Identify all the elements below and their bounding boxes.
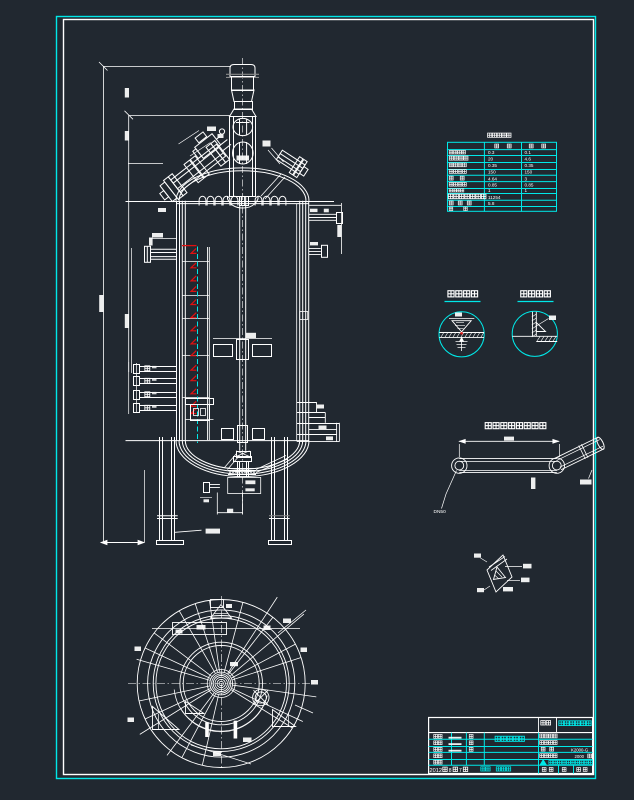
svg-text:8: 8 xyxy=(449,768,452,774)
svg-text:20: 20 xyxy=(488,156,494,161)
svg-text:150: 150 xyxy=(488,170,496,175)
svg-text:0.85: 0.85 xyxy=(488,182,497,187)
svg-text:DN50: DN50 xyxy=(434,509,447,515)
svg-text:0.35: 0.35 xyxy=(488,163,497,168)
svg-text:4.6: 4.6 xyxy=(525,156,532,161)
svg-text:3: 3 xyxy=(525,176,528,181)
svg-text:0.1: 0.1 xyxy=(525,150,532,155)
svg-text:7: 7 xyxy=(459,768,462,774)
svg-text:11254: 11254 xyxy=(488,195,501,200)
svg-text:0.85: 0.85 xyxy=(525,182,534,187)
svg-text:2000: 2000 xyxy=(575,754,585,759)
svg-text:0.3: 0.3 xyxy=(488,150,495,155)
svg-text:4.64: 4.64 xyxy=(488,176,497,181)
svg-text:1: 1 xyxy=(488,188,491,193)
svg-text:150: 150 xyxy=(525,170,533,175)
svg-text:2012: 2012 xyxy=(430,768,442,774)
svg-text:0.35: 0.35 xyxy=(525,163,534,168)
svg-text:1: 1 xyxy=(525,188,528,193)
svg-text:5.8: 5.8 xyxy=(488,201,495,206)
svg-text:K2000-G: K2000-G xyxy=(571,747,589,752)
